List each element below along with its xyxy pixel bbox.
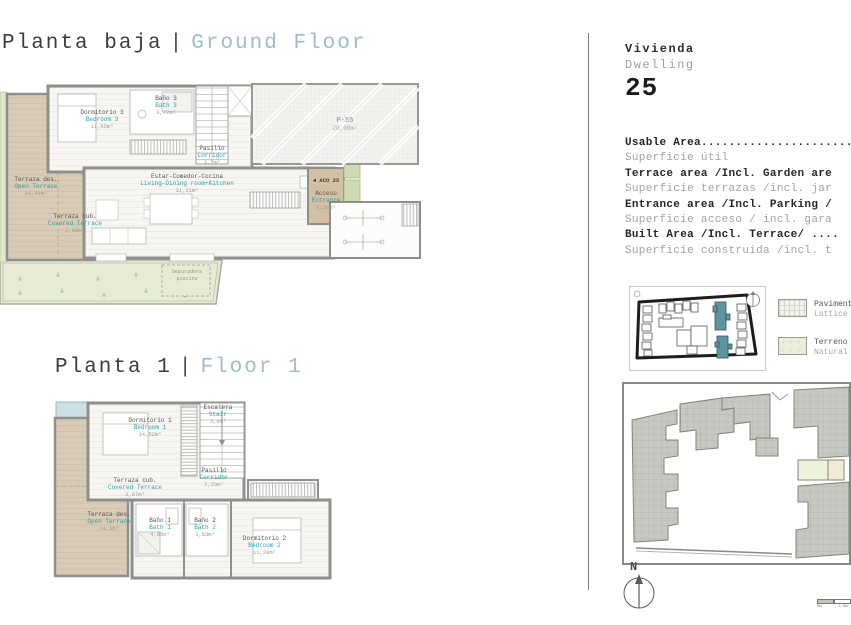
- garden-area: [0, 260, 222, 304]
- scale-tick: 2.5m: [838, 605, 848, 609]
- room-label-covered-terrace-f1: Terraza cub. Covered Terrace 3,67m²: [105, 478, 165, 498]
- kitchen-counter-symbol: [250, 192, 300, 208]
- room-label-bath3: Baño 3 Bath 3 3,77m²: [138, 96, 194, 116]
- room-area: 6,26m²: [306, 205, 346, 211]
- area-row-es: Superficie acceso / incl. gara: [625, 213, 851, 228]
- area-row-es: Superficie construida /incl. t: [625, 244, 851, 259]
- room-area: 3,77m²: [138, 110, 194, 116]
- pool-equipment-label: Depuradora piscina: [164, 269, 210, 282]
- parking-area-value: 20,08m²: [315, 125, 375, 132]
- dining-table-symbol: [150, 194, 192, 224]
- vertical-divider: [588, 33, 589, 590]
- room-label-living: Estar-Comedor-Cocina Living-Dining room+…: [112, 174, 262, 194]
- legend-label-en: Natural: [814, 348, 848, 358]
- brochure-page: Planta baja|Ground Floor Planta 1|Floor …: [0, 0, 851, 625]
- area-row-en: Entrance area /Incl. Parking /: [625, 198, 851, 213]
- terrain-swatch: [778, 337, 807, 355]
- room-area: 14,5m²: [80, 526, 138, 532]
- room-area: 11,65m²: [62, 124, 142, 130]
- room-label-open-terrace-f1: Terraza des. Open Terrace 14,5m²: [80, 512, 138, 532]
- dwelling-number: 25: [625, 73, 695, 103]
- room-area: 2,23m²: [188, 482, 240, 488]
- room-area: 11,28m²: [222, 550, 307, 556]
- title-separator: |: [170, 32, 185, 55]
- title-en: Ground Floor: [191, 32, 366, 55]
- room-label-corridor-f1: Pasillo Corridor 2,23m²: [188, 468, 240, 488]
- area-row-en: Usable Area.......................: [625, 136, 851, 151]
- site-key-plan: [629, 286, 766, 371]
- room-label-corridor-gf: Pasillo Corridor 3,7m²: [186, 146, 238, 166]
- entrance-door-tag: ◄ ACO 25: [306, 177, 346, 184]
- room-area: 31,21m²: [112, 188, 262, 194]
- parking-label: P-55 20,08m²: [315, 117, 375, 133]
- area-row-en: Built Area /Incl. Terrace/ ....: [625, 228, 851, 243]
- room-label-bath1: Baño 1 Bath 1 4,05m²: [136, 518, 184, 538]
- room-label-open-terrace-gf: Terraza des. Open Terrace 14,44m²: [10, 177, 62, 197]
- skylight-symbol: [56, 402, 88, 418]
- highlighted-dwelling: [798, 460, 828, 480]
- scale-tick: 0m: [817, 605, 822, 609]
- room-label-entrance: Acceso Entrance 6,26m²: [306, 191, 346, 211]
- room-area: 14,52m²: [105, 432, 195, 438]
- scale-bar: 0m 2.5m 5m: [817, 599, 851, 609]
- lattice-swatch: [778, 299, 807, 317]
- area-row-en: Terrace area /Incl. Garden are: [625, 167, 851, 182]
- legend-label-en: Lattice: [814, 310, 851, 320]
- room-label-stair: Escalera Stair 3,6m²: [192, 405, 244, 425]
- room-label-covered-terrace-gf: Terraza cub. Covered Terrace 2,69m²: [46, 214, 104, 234]
- scale-segment: [817, 599, 834, 604]
- legend-row-terrain: Terreno Natural: [778, 337, 848, 358]
- room-area: 4,05m²: [136, 532, 184, 538]
- title-separator: |: [179, 356, 194, 379]
- scale-segment: [834, 599, 851, 604]
- area-table: Usable Area....................... Super…: [625, 136, 851, 259]
- legend-label-es: Terreno: [814, 338, 848, 348]
- legend-row-pavement: Pavimento Lattice: [778, 299, 851, 320]
- dwelling-label-es: Vivienda: [625, 42, 695, 56]
- title-en: Floor 1: [200, 356, 302, 379]
- room-area: 3,67m²: [105, 492, 165, 498]
- area-row-es: Superficie terrazas /incl. jar: [625, 182, 851, 197]
- area-row-es: Superficie útil: [625, 151, 851, 166]
- room-area: 3,7m²: [186, 160, 238, 166]
- ground-floor-title: Planta baja|Ground Floor: [2, 32, 366, 55]
- room-label-bedroom2: Dormitorio 2 Bedroom 2 11,28m²: [222, 536, 307, 556]
- room-label-bedroom1: Dormitorio 1 Bedroom 1 14,52m²: [105, 418, 195, 438]
- parking-name: P-55: [315, 117, 375, 125]
- room-area: 3,6m²: [192, 419, 244, 425]
- dwelling-label-en: Dwelling: [625, 58, 695, 72]
- pool-note-line2: piscina: [164, 276, 210, 283]
- north-label: N: [630, 560, 637, 574]
- title-es: Planta 1: [55, 356, 172, 379]
- title-es: Planta baja: [2, 32, 163, 55]
- planter-symbol: [344, 180, 360, 202]
- site-plan: [622, 382, 851, 565]
- legend-label-es: Pavimento: [814, 300, 851, 310]
- dwelling-header: Vivienda Dwelling 25: [625, 42, 695, 103]
- room-area: 14,44m²: [10, 191, 62, 197]
- room-area: 2,69m²: [46, 228, 104, 234]
- first-floor-title: Planta 1|Floor 1: [55, 356, 303, 379]
- wardrobe-symbol: [130, 140, 186, 154]
- north-compass-icon: [621, 573, 657, 611]
- room-label-bedroom3: Dormitorio 3 Bedroom 3 11,65m²: [62, 110, 142, 130]
